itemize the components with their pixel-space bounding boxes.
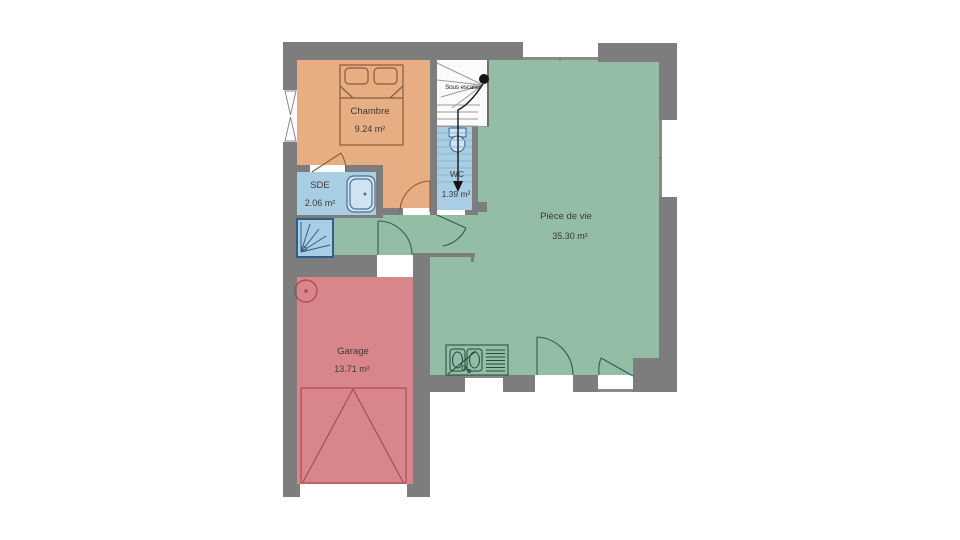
wall-bottom-3	[573, 375, 598, 392]
wall-chambre-bottom	[383, 208, 403, 215]
label-garage-name: Garage	[313, 346, 393, 357]
window-top-glass	[523, 57, 598, 60]
window-bottom1-glass	[465, 375, 503, 378]
label-sde-area: 2.06 m²	[292, 198, 348, 208]
wall-garage-bottom-left	[283, 484, 300, 497]
window-right-glass	[659, 120, 662, 197]
room-sde	[292, 172, 376, 215]
wall-sde-top-left	[292, 165, 310, 172]
label-under-stairs: Sous escalier	[435, 84, 491, 91]
wall-top-right-corner	[598, 43, 677, 62]
wall-bottom-2	[503, 375, 535, 392]
wall-top	[283, 42, 523, 60]
label-wc-name: WC	[437, 169, 477, 179]
wall-sde-right	[376, 165, 383, 215]
floor-plan: Chambre 9.24 m² SDE 2.06 m² WC 1.39 m² P…	[0, 0, 960, 540]
room-hallway	[334, 215, 430, 255]
wall-garage-top	[283, 255, 377, 277]
label-wc-area: 1.39 m²	[430, 189, 482, 199]
wall-wc-stub	[472, 202, 487, 212]
door-gap-wc	[437, 210, 465, 215]
room-garage	[297, 277, 413, 484]
door-gap-chambre	[403, 208, 430, 215]
wall-stub-tick	[471, 253, 474, 262]
label-piece-de-vie-area: 35.30 m²	[520, 231, 620, 241]
stairs-area	[437, 60, 489, 127]
window-bottom2-glass	[598, 389, 633, 392]
wall-right-upper	[659, 62, 677, 120]
wall-bottom-right-corner	[633, 358, 677, 392]
wall-bottom-1	[430, 375, 465, 392]
label-chambre-area: 9.24 m²	[330, 124, 410, 134]
label-sde-name: SDE	[296, 180, 344, 191]
wall-garage-bottom-right	[407, 484, 430, 497]
label-garage-area: 13.71 m²	[312, 364, 392, 374]
label-piece-de-vie-name: Pièce de vie	[516, 211, 616, 222]
wall-garage-right	[413, 253, 430, 497]
room-piece-de-vie-strip	[430, 210, 478, 375]
wall-left-lower	[283, 142, 297, 497]
label-chambre-name: Chambre	[330, 106, 410, 117]
wall-stub-horizontal	[430, 253, 475, 257]
shower-tray	[296, 218, 334, 258]
window-chambre-icon	[285, 91, 296, 141]
